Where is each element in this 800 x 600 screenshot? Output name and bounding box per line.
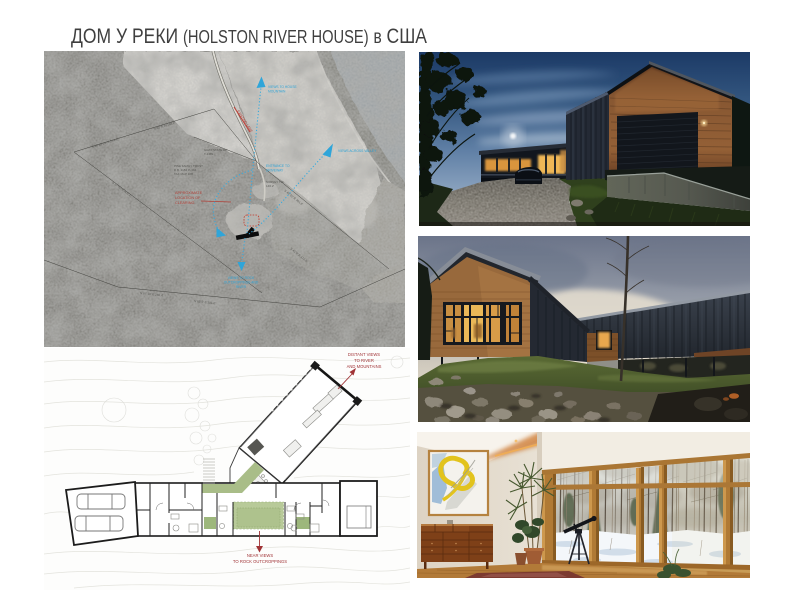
svg-text:146.2': 146.2' bbox=[266, 184, 275, 188]
svg-text:RIVER: RIVER bbox=[236, 285, 247, 289]
svg-text:MOUNTAIN: MOUNTAIN bbox=[268, 90, 286, 94]
svg-text:DRIVEWAY: DRIVEWAY bbox=[266, 169, 284, 173]
svg-text:TAX MAP 108: TAX MAP 108 bbox=[174, 172, 193, 176]
svg-text:LOCATION OF: LOCATION OF bbox=[175, 196, 201, 200]
svg-text:VIEWS TO ROCK: VIEWS TO ROCK bbox=[228, 276, 255, 280]
svg-text:AND MOUNTAINS: AND MOUNTAINS bbox=[347, 364, 382, 369]
svg-text:TO ROCK OUTCROPPINGS: TO ROCK OUTCROPPINGS bbox=[233, 559, 287, 564]
svg-text:ENTRANCE TO: ENTRANCE TO bbox=[266, 164, 290, 168]
svg-text:TO RIVER: TO RIVER bbox=[354, 358, 374, 363]
svg-text:T-1489: T-1489 bbox=[204, 152, 214, 156]
svg-text:CLEARING: CLEARING bbox=[175, 201, 194, 205]
svg-text:NEAR VIEWS: NEAR VIEWS bbox=[247, 553, 273, 558]
svg-text:VIEWS TO HOUSE: VIEWS TO HOUSE bbox=[268, 85, 297, 89]
svg-text:DISTANT VIEWS: DISTANT VIEWS bbox=[348, 352, 380, 357]
svg-text:VIEWS ACROSS VALLEY: VIEWS ACROSS VALLEY bbox=[338, 149, 377, 153]
svg-text:APPROXIMATE: APPROXIMATE bbox=[175, 191, 203, 195]
svg-text:OUTCROPPINGS AND: OUTCROPPINGS AND bbox=[224, 281, 259, 285]
